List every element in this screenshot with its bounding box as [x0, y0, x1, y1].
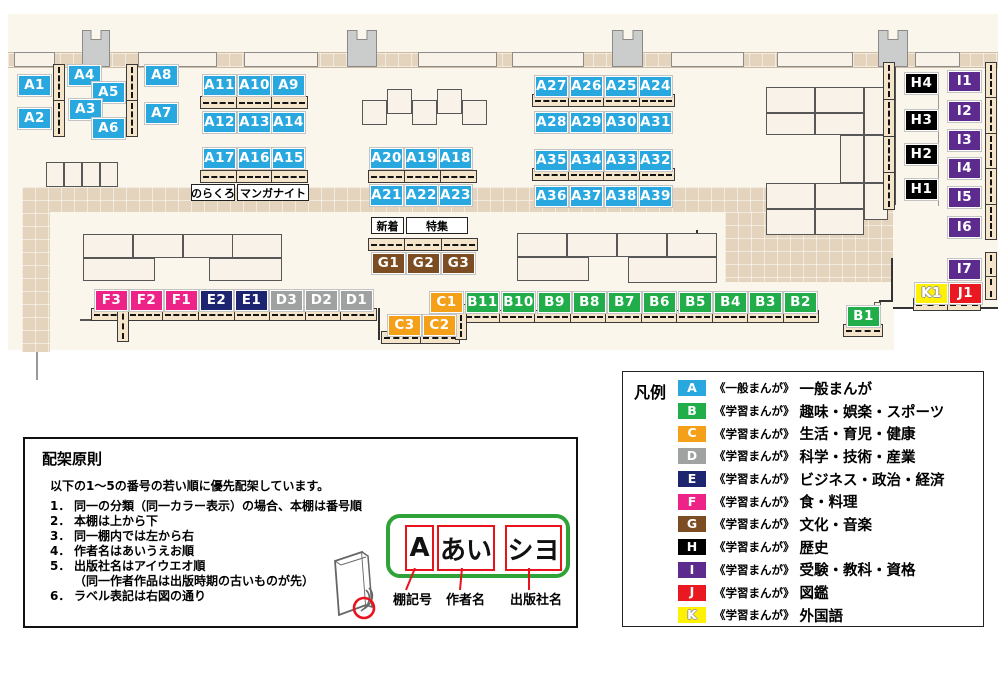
shelf-label-B1: B1: [847, 306, 880, 327]
shelf-label-A21: A21: [370, 185, 403, 206]
wall-line: [938, 80, 939, 206]
legend-row-B: B《学習まんが》趣味・娯楽・スポーツ: [678, 400, 945, 423]
legend-series: 《学習まんが》: [714, 539, 795, 555]
bookshelf: [985, 252, 997, 300]
legend-row-G: G《学習まんが》文化・音楽: [678, 513, 945, 536]
legend-rows: A《一般まんが》一般まんがB《学習まんが》趣味・娯楽・スポーツC《学習まんが》生…: [678, 377, 945, 627]
legend-series: 《学習まんが》: [714, 448, 795, 464]
map-note: 新着: [371, 217, 404, 234]
table: [362, 100, 387, 125]
table: [133, 234, 183, 258]
map-note: のらくろ: [191, 184, 235, 201]
legend-row-I: I《学習まんが》受験・教科・資格: [678, 559, 945, 582]
shelf-label-A23: A23: [439, 185, 472, 206]
table: [100, 162, 118, 187]
legend-category: ビジネス・政治・経済: [800, 469, 945, 490]
sample-caption: 出版社名: [510, 589, 562, 608]
shelf-label-D3: D3: [270, 290, 303, 311]
bookshelf: [883, 62, 895, 210]
legend-title: 凡例: [634, 379, 666, 403]
legend-series: 《学習まんが》: [714, 585, 795, 601]
shelf-label-A18: A18: [439, 148, 472, 169]
shelf-label-I7: I7: [948, 259, 981, 280]
shelf-label-A34: A34: [570, 150, 603, 171]
table: [232, 234, 282, 258]
principles-title: 配架原則: [42, 448, 102, 469]
table: [628, 257, 717, 283]
shelf-label-A35: A35: [535, 150, 568, 171]
shelf-label-I4: I4: [948, 158, 981, 179]
legend-category: 外国語: [800, 605, 844, 626]
floor-map: A1A2A4A5A3A6A8A7A11A10A9A12A13A14A17A16A…: [0, 0, 1000, 362]
table: [667, 233, 717, 257]
shelf-label-A36: A36: [535, 186, 568, 207]
shelf-label-B6: B6: [643, 292, 676, 313]
shelf-label-E1: E1: [235, 290, 268, 311]
shelf-label-I6: I6: [948, 217, 981, 238]
shelf-label-A11: A11: [203, 75, 236, 96]
shelf-label-A2: A2: [18, 108, 51, 129]
shelf-label-B11: B11: [466, 292, 499, 313]
shelf-label-I2: I2: [948, 101, 981, 122]
shelf-label-H1: H1: [905, 179, 938, 200]
legend-series: 《学習まんが》: [714, 562, 795, 578]
legend-row-H: H《学習まんが》歴史: [678, 536, 945, 559]
shelf-label-A1: A1: [18, 75, 51, 96]
legend-color-chip: K: [678, 607, 706, 623]
principles-list: 1．同一の分類（同一カラー表示）の場合、本棚は番号順2．本棚は上から下3．同一棚…: [50, 499, 362, 604]
shelf-label-I1: I1: [948, 71, 981, 92]
principle-item: 6．ラベル表記は右図の通り: [50, 589, 362, 604]
legend-category: 受験・教科・資格: [800, 559, 916, 580]
table: [815, 113, 864, 135]
table: [437, 89, 462, 114]
shelf-label-A13: A13: [238, 112, 271, 133]
shelf-label-A3: A3: [69, 99, 102, 120]
walkway: [22, 187, 50, 352]
table: [815, 183, 864, 209]
shelf-label-A26: A26: [570, 76, 603, 97]
shelf-label-B5: B5: [679, 292, 712, 313]
legend-color-chip: C: [678, 426, 706, 442]
shelf-label-C2: C2: [423, 315, 456, 336]
principle-note: （同一作者作品は出版時期の古いものが先）: [50, 574, 362, 589]
principle-item: 1．同一の分類（同一カラー表示）の場合、本棚は番号順: [50, 499, 362, 514]
shelf-label-B10: B10: [502, 292, 535, 313]
shelf-label-C1: C1: [430, 292, 463, 313]
shelf-label-J1: J1: [949, 283, 982, 304]
wall-line: [891, 258, 893, 302]
shelf-label-A37: A37: [570, 186, 603, 207]
principle-item: 5．出版社名はアイウエオ順: [50, 559, 362, 574]
table: [387, 89, 412, 114]
legend-color-chip: H: [678, 539, 706, 555]
shelf-label-C3: C3: [388, 315, 421, 336]
table: [46, 162, 64, 187]
sample-caption: 棚記号: [393, 589, 432, 608]
table: [766, 209, 815, 235]
table: [209, 258, 282, 281]
legend-series: 《学習まんが》: [714, 426, 795, 442]
shelf-label-A19: A19: [405, 148, 438, 169]
principle-item: 2．本棚は上から下: [50, 514, 362, 529]
legend-category: 趣味・娯楽・スポーツ: [800, 401, 945, 422]
bookshelf: [200, 96, 308, 109]
legend-color-chip: J: [678, 585, 706, 601]
bookshelf: [368, 238, 478, 251]
table: [617, 233, 667, 257]
window: [915, 52, 960, 67]
shelf-label-A25: A25: [605, 76, 638, 97]
shelf-label-A24: A24: [639, 76, 672, 97]
bookshelf: [53, 64, 65, 137]
table: [567, 233, 617, 257]
legend-color-chip: G: [678, 516, 706, 532]
table: [183, 234, 233, 258]
table: [517, 257, 589, 281]
pillar: [82, 30, 110, 67]
shelf-label-A8: A8: [145, 65, 178, 86]
table: [815, 209, 864, 235]
legend-row-D: D《学習まんが》科学・技術・産業: [678, 445, 945, 468]
sample-caption: 作者名: [446, 589, 485, 608]
shelf-label-G1: G1: [372, 253, 405, 274]
shelf-label-B2: B2: [784, 292, 817, 313]
shelf-label-B9: B9: [538, 292, 571, 313]
table: [412, 100, 437, 125]
legend-series: 《学習まんが》: [714, 607, 795, 623]
shelf-label-B3: B3: [749, 292, 782, 313]
map-note: マンガナイト: [237, 184, 309, 201]
legend-row-E: E《学習まんが》ビジネス・政治・経済: [678, 468, 945, 491]
shelf-label-D2: D2: [305, 290, 338, 311]
window: [244, 52, 318, 67]
shelf-label-H4: H4: [905, 73, 938, 94]
shelf-label-A9: A9: [272, 75, 305, 96]
shelf-label-H3: H3: [905, 110, 938, 131]
shelf-label-A27: A27: [535, 76, 568, 97]
legend-row-K: K《学習まんが》外国語: [678, 604, 945, 627]
shelf-label-K1: K1: [915, 283, 948, 304]
shelf-label-A16: A16: [238, 148, 271, 169]
shelf-label-A31: A31: [639, 112, 672, 133]
shelf-label-A15: A15: [272, 148, 305, 169]
window: [512, 52, 584, 67]
legend-category: 文化・音楽: [800, 514, 873, 535]
wall-line: [378, 308, 380, 340]
bookshelf: [985, 62, 997, 240]
shelf-label-A33: A33: [605, 150, 638, 171]
shelf-label-A28: A28: [535, 112, 568, 133]
bookshelf: [126, 64, 138, 137]
legend-color-chip: A: [678, 380, 706, 396]
shelf-label-A32: A32: [639, 150, 672, 171]
legend-series: 《学習まんが》: [714, 403, 795, 419]
shelf-label-A22: A22: [405, 185, 438, 206]
shelf-label-A10: A10: [238, 75, 271, 96]
table: [766, 87, 815, 113]
legend-series: 《学習まんが》: [714, 516, 795, 532]
book-illustration: [326, 545, 388, 621]
table: [83, 258, 155, 281]
legend-color-chip: F: [678, 494, 706, 510]
table: [517, 233, 567, 257]
legend-color-chip: E: [678, 471, 706, 487]
shelf-label-B4: B4: [714, 292, 747, 313]
table: [82, 162, 100, 187]
legend-category: 一般まんが: [800, 378, 873, 399]
legend-row-A: A《一般まんが》一般まんが: [678, 377, 945, 400]
wall-line: [36, 352, 38, 380]
legend-color-chip: B: [678, 403, 706, 419]
bookshelf: [368, 170, 477, 183]
legend-row-F: F《学習まんが》食・料理: [678, 490, 945, 513]
window: [418, 52, 497, 67]
shelf-label-A39: A39: [639, 186, 672, 207]
table: [83, 234, 133, 258]
window: [14, 52, 55, 67]
legend-series: 《学習まんが》: [714, 494, 795, 510]
legend-color-chip: D: [678, 448, 706, 464]
shelf-label-A6: A6: [92, 118, 125, 139]
shelf-label-B7: B7: [608, 292, 641, 313]
legend-color-chip: I: [678, 562, 706, 578]
sample-label-segment: シヨ: [505, 525, 562, 571]
shelf-label-A20: A20: [370, 148, 403, 169]
shelf-label-G2: G2: [407, 253, 440, 274]
shelf-label-H2: H2: [905, 144, 938, 165]
legend-box: 凡例 A《一般まんが》一般まんがB《学習まんが》趣味・娯楽・スポーツC《学習まん…: [622, 371, 984, 627]
pillar: [347, 30, 377, 67]
shelf-label-A7: A7: [145, 103, 178, 124]
pillar: [612, 30, 643, 67]
table: [766, 113, 815, 135]
shelf-label-A30: A30: [605, 112, 638, 133]
shelf-label-A14: A14: [272, 112, 305, 133]
shelf-label-A38: A38: [605, 186, 638, 207]
table: [815, 87, 864, 113]
legend-category: 図鑑: [800, 582, 829, 603]
shelf-label-E2: E2: [200, 290, 233, 311]
sample-label-segment: A: [405, 525, 434, 571]
wall-line: [879, 300, 893, 302]
floor-map-page: A1A2A4A5A3A6A8A7A11A10A9A12A13A14A17A16A…: [0, 0, 1000, 700]
shelf-label-A29: A29: [570, 112, 603, 133]
shelf-label-F1: F1: [165, 290, 198, 311]
bookshelf: [200, 170, 308, 183]
shelf-label-I3: I3: [948, 130, 981, 151]
legend-category: 食・料理: [800, 491, 858, 512]
legend-category: 生活・育児・健康: [800, 423, 916, 444]
legend-row-J: J《学習まんが》図鑑: [678, 581, 945, 604]
table: [766, 183, 815, 209]
shelf-label-A17: A17: [203, 148, 236, 169]
legend-row-C: C《学習まんが》生活・育児・健康: [678, 422, 945, 445]
principle-item: 4．作者名はあいうえお順: [50, 544, 362, 559]
shelf-label-B8: B8: [573, 292, 606, 313]
sample-label-segment: あい: [437, 525, 495, 571]
table: [462, 100, 487, 125]
legend-series: 《学習まんが》: [714, 471, 795, 487]
shelf-label-F3: F3: [95, 290, 128, 311]
table: [64, 162, 82, 187]
legend-series: 《一般まんが》: [714, 380, 795, 396]
shelf-label-I5: I5: [948, 187, 981, 208]
principles-intro: 以下の1～5の番号の若い順に優先配架しています。: [50, 477, 329, 494]
window: [777, 52, 853, 67]
legend-category: 科学・技術・産業: [800, 446, 916, 467]
shelf-label-F2: F2: [130, 290, 163, 311]
legend-category: 歴史: [800, 537, 829, 558]
table: [840, 135, 864, 183]
shelf-label-D1: D1: [340, 290, 373, 311]
shelf-label-A12: A12: [203, 112, 236, 133]
map-note: 特集: [406, 217, 468, 234]
window: [671, 52, 744, 67]
principle-item: 3．同一棚内では左から右: [50, 529, 362, 544]
shelf-label-G3: G3: [442, 253, 475, 274]
